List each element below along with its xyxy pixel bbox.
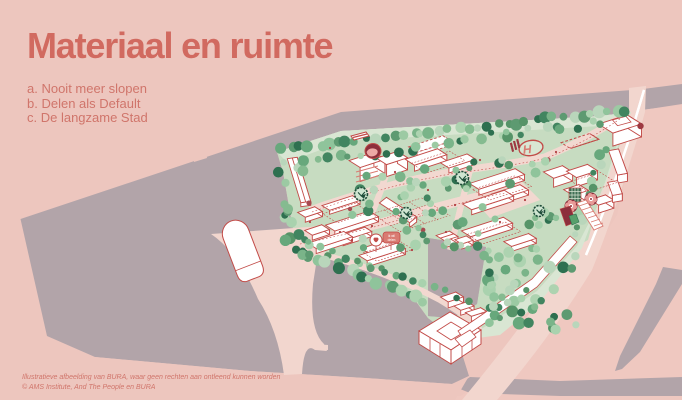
svg-text:delen: delen xyxy=(388,238,396,242)
svg-text:H: H xyxy=(522,142,532,157)
